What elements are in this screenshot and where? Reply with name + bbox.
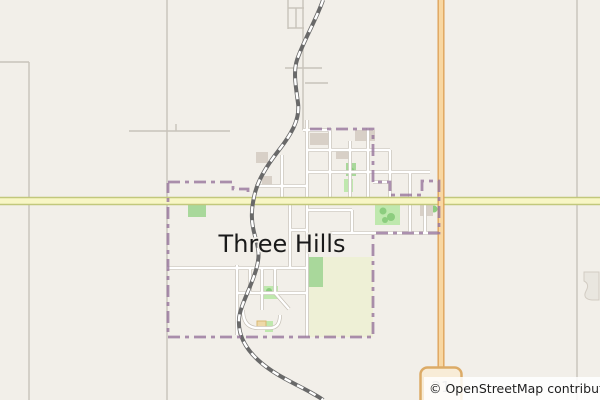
map-svg: 21 Three Hills © OpenStreetMap contribut… <box>0 0 600 400</box>
map-viewport[interactable]: 21 Three Hills © OpenStreetMap contribut… <box>0 0 600 400</box>
tree <box>382 217 388 223</box>
attribution: © OpenStreetMap contributors <box>424 377 600 400</box>
tree <box>380 208 387 215</box>
tree <box>387 213 395 221</box>
building <box>262 176 272 185</box>
building <box>256 152 268 163</box>
attribution-link[interactable]: © OpenStreetMap contributors <box>429 381 600 396</box>
landuse-park <box>375 204 400 225</box>
building <box>310 133 330 145</box>
town-label: Three Hills <box>218 230 346 258</box>
